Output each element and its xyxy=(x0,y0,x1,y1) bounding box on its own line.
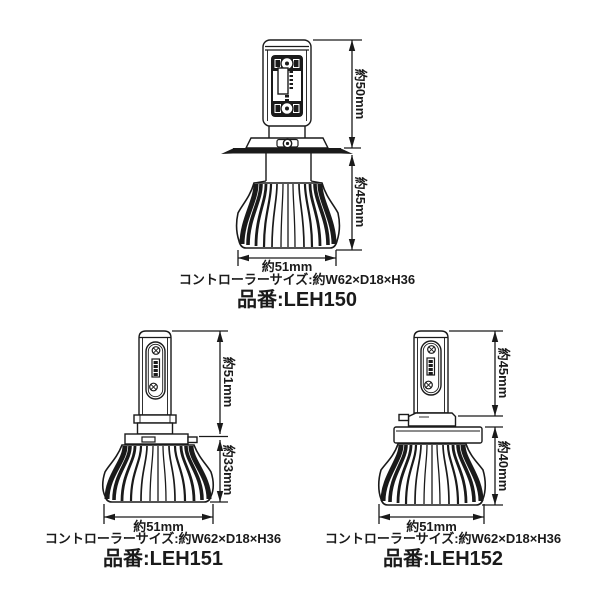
part-number-text: 品番:LEH152 xyxy=(293,548,593,570)
bulb-drawing-leh151 xyxy=(103,331,214,502)
connector-tab xyxy=(188,437,197,443)
part-number-text: 品番:LEH151 xyxy=(13,548,313,570)
bulb-base xyxy=(409,413,456,426)
base-plate xyxy=(125,434,188,444)
dim-lower-label: 約40mm xyxy=(496,441,511,492)
led-strip xyxy=(278,68,288,94)
base-ring xyxy=(394,427,482,443)
caption-leh152: コントローラーサイズ:約W62×D18×H36 品番:LEH152 xyxy=(293,531,593,570)
h4-flange xyxy=(221,148,353,154)
dim-upper-label: 約50mm xyxy=(353,69,368,120)
dim-lower-label: 約33mm xyxy=(221,445,236,496)
dim-upper-label: 約45mm xyxy=(496,348,511,399)
diagram-canvas: 約50mm 約45mm 約51mm xyxy=(0,0,600,600)
heatsink xyxy=(237,183,340,248)
bulb-drawing-leh152 xyxy=(379,331,486,505)
caption-leh150: コントローラーサイズ:約W62×D18×H36 品番:LEH150 xyxy=(147,272,447,311)
controller-size-text: コントローラーサイズ:約W62×D18×H36 xyxy=(13,531,313,546)
heatsink xyxy=(379,444,486,505)
connector-tab xyxy=(399,415,409,421)
caption-leh151: コントローラーサイズ:約W62×D18×H36 品番:LEH151 xyxy=(13,531,313,570)
controller-size-text: コントローラーサイズ:約W62×D18×H36 xyxy=(147,272,447,287)
controller-size-text: コントローラーサイズ:約W62×D18×H36 xyxy=(293,531,593,546)
dim-upper-label: 約51mm xyxy=(221,357,236,408)
bulb-drawing-leh150 xyxy=(221,40,353,248)
dim-lower-label: 約45mm xyxy=(353,177,368,228)
heatsink xyxy=(103,445,214,502)
part-number-text: 品番:LEH150 xyxy=(147,289,447,311)
